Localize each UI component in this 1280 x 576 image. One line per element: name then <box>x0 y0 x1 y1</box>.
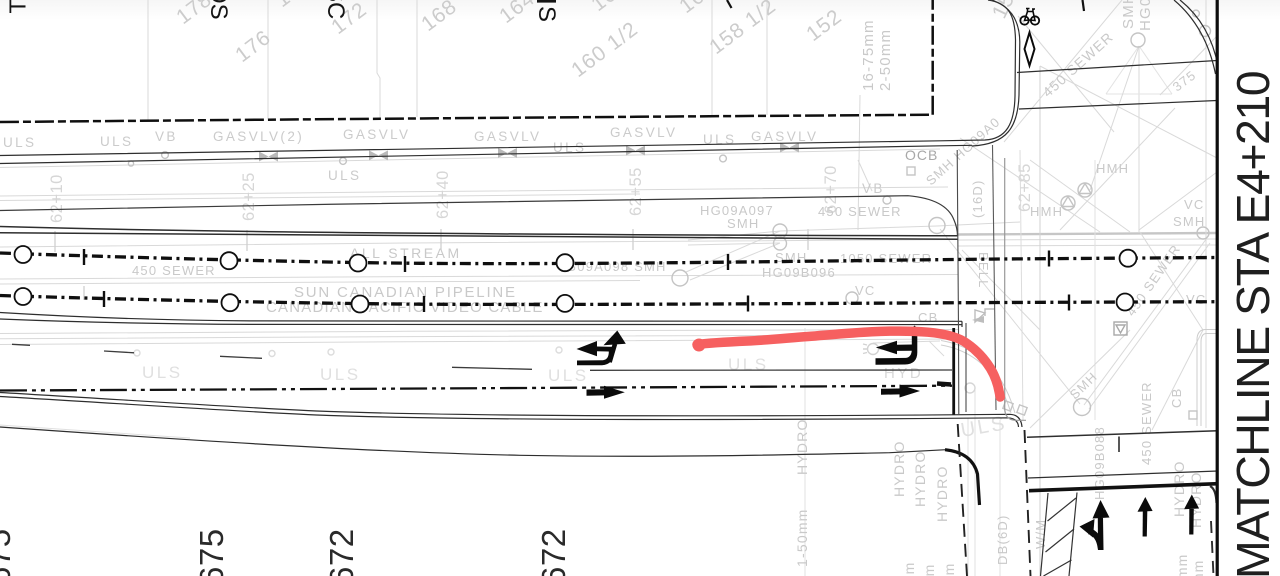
svg-text:DB(6D): DB(6D) <box>995 514 1010 565</box>
svg-text:675: 675 <box>0 528 17 576</box>
svg-text:SMH: SMH <box>727 216 760 231</box>
svg-text:62+55: 62+55 <box>627 167 645 216</box>
svg-text:T: T <box>5 0 31 14</box>
svg-text:MATCHLINE STA E4+210: MATCHLINE STA E4+210 <box>1227 71 1279 576</box>
svg-text:GASVLV: GASVLV <box>343 127 410 142</box>
svg-text:ULS: ULS <box>548 366 589 385</box>
svg-text:GASVLV: GASVLV <box>751 129 818 144</box>
svg-text:1-50mm: 1-50mm <box>941 562 957 576</box>
svg-text:HMH: HMH <box>1030 204 1063 219</box>
svg-text:SMH: SMH <box>1173 214 1206 229</box>
svg-text:VC: VC <box>1184 197 1204 212</box>
svg-text:672: 672 <box>323 528 360 576</box>
svg-text:ULS: ULS <box>728 355 769 374</box>
svg-text:CB: CB <box>1169 388 1184 408</box>
svg-text:62+25: 62+25 <box>240 172 258 221</box>
svg-text:ULS: ULS <box>320 365 361 384</box>
svg-text:VC: VC <box>1186 292 1206 307</box>
svg-text:HYDRO: HYDRO <box>891 440 907 497</box>
svg-text:2-50mm: 2-50mm <box>877 29 894 91</box>
svg-text:VC: VC <box>855 283 875 298</box>
svg-text:HYDRO: HYDRO <box>912 450 928 507</box>
svg-text:1050 SEWER: 1050 SEWER <box>840 251 932 266</box>
svg-text:GASVLV: GASVLV <box>610 125 677 140</box>
svg-text:BELL: BELL <box>976 252 991 289</box>
svg-text:2-50mm: 2-50mm <box>1174 553 1190 576</box>
svg-text:450 SEWER: 450 SEWER <box>818 204 902 219</box>
svg-text:HYD: HYD <box>884 365 923 382</box>
svg-text:16-75mm: 16-75mm <box>860 19 877 91</box>
svg-text:OS: OS <box>205 0 232 20</box>
svg-text:675: 675 <box>193 528 230 576</box>
svg-text:1-50mm: 1-50mm <box>794 508 810 567</box>
svg-text:62+10: 62+10 <box>48 174 66 223</box>
svg-text:1-50mm: 1-50mm <box>1190 559 1206 576</box>
svg-text:CB: CB <box>918 310 938 325</box>
svg-text:GASVLV: GASVLV <box>474 129 541 144</box>
svg-text:S: S <box>533 6 560 22</box>
svg-text:GASVLV(2): GASVLV(2) <box>213 129 304 144</box>
svg-text:HG09: HG09 <box>1137 0 1154 31</box>
svg-text:OCB: OCB <box>905 147 938 163</box>
svg-text:G09A098 SMH: G09A098 SMH <box>566 259 667 274</box>
svg-text:2-50mm: 2-50mm <box>921 563 937 576</box>
svg-text:672: 672 <box>535 528 572 576</box>
svg-text:HYDRO: HYDRO <box>934 465 950 522</box>
svg-text:HMH: HMH <box>1096 161 1129 176</box>
svg-text:ULS: ULS <box>328 168 361 183</box>
svg-text:ULS: ULS <box>142 363 183 382</box>
svg-text:HYDRO: HYDRO <box>794 418 810 475</box>
svg-text:HG09B096: HG09B096 <box>762 265 836 280</box>
svg-text:(16D): (16D) <box>970 179 985 218</box>
svg-text:SMH: SMH <box>1120 0 1137 29</box>
svg-text:450 SEWER: 450 SEWER <box>1139 381 1154 465</box>
svg-text:ULS: ULS <box>100 134 133 149</box>
svg-text:VB: VB <box>862 181 885 196</box>
svg-text:450 SEWER: 450 SEWER <box>132 263 216 278</box>
svg-text:VB: VB <box>155 129 178 144</box>
svg-text:SC: SC <box>322 0 349 19</box>
svg-text:62+40: 62+40 <box>434 170 452 219</box>
svg-text:ULS: ULS <box>3 135 36 150</box>
svg-text:1-75mm: 1-75mm <box>901 561 917 576</box>
